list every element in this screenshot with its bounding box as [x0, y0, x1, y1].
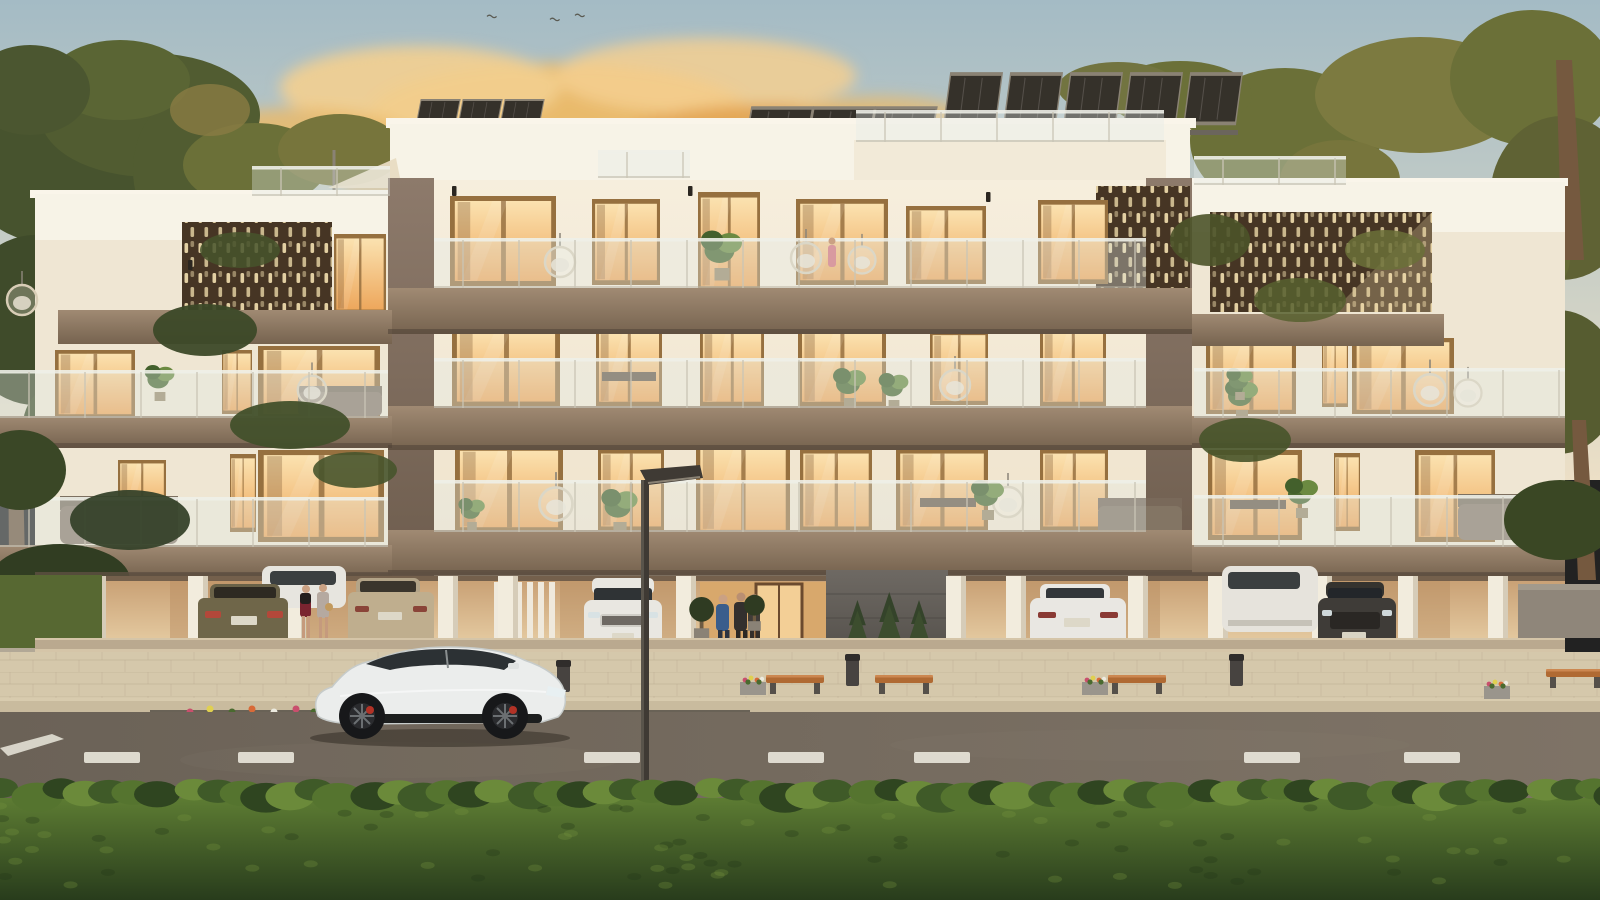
front-wheel [482, 693, 528, 739]
left-pier [388, 178, 434, 576]
dashed-centre-line [84, 752, 1460, 763]
architectural-rendering [0, 0, 1600, 900]
scene-canvas [0, 0, 1600, 900]
penthouse-wall [854, 140, 1166, 182]
hedge [0, 778, 1600, 900]
balcony-figure [828, 238, 836, 268]
white-suv-right [1222, 566, 1318, 632]
rear-wheel [339, 693, 385, 739]
right-retaining-wall [1518, 584, 1600, 638]
